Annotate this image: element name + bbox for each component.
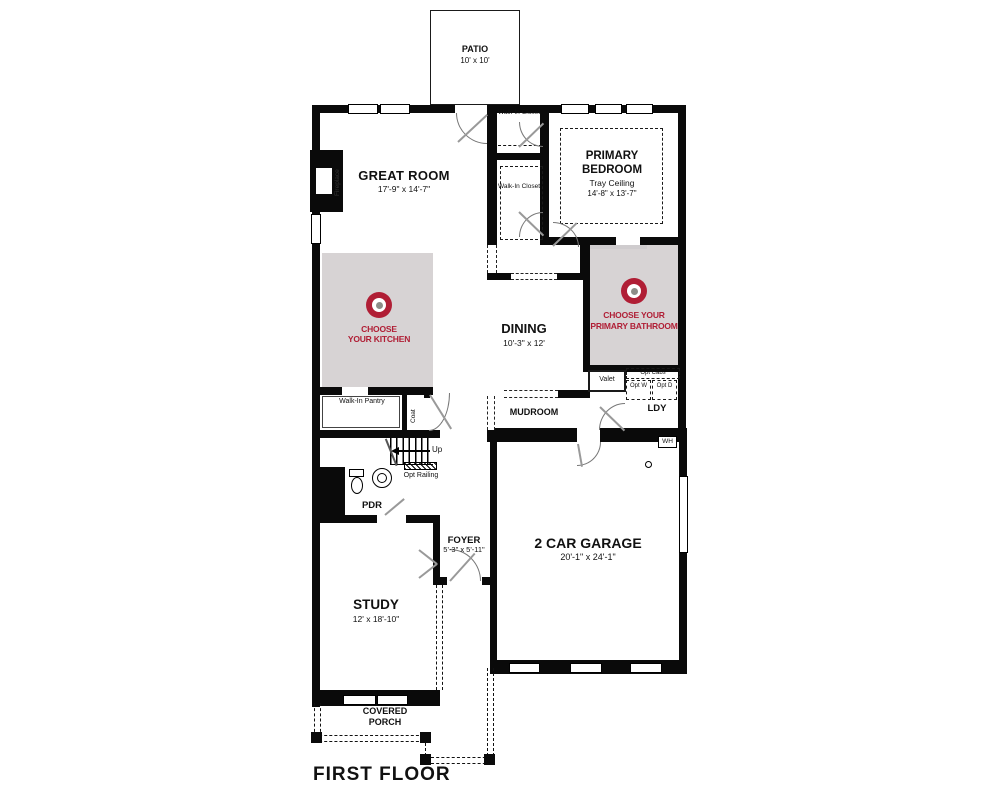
kitchen-callout-line1: CHOOSE: [330, 324, 428, 334]
wall-left-study: [312, 515, 320, 707]
great-room-name: GREAT ROOM: [344, 168, 464, 183]
stairs-up-label: Up: [432, 445, 452, 454]
wall-study-bottom: [312, 690, 440, 706]
study-name: STUDY: [330, 597, 422, 613]
window-greatroom-left: [311, 214, 321, 244]
cased-opening-mudroom-left: [487, 396, 495, 430]
porch-foyer-edge-2: [442, 585, 443, 690]
cased-opening-greatroom-hall: [487, 245, 497, 273]
primary-bedroom-dims: 14'-8" x 13'-7": [566, 189, 658, 198]
porch-edge-bottom-1b: [314, 741, 424, 742]
stair-up-arrow-line: [398, 450, 430, 452]
window-bedroom-3: [626, 104, 653, 114]
garage-door-2: [570, 663, 602, 673]
dining-name: DINING: [484, 321, 564, 336]
toilet-bowl-icon: [351, 477, 363, 494]
primary-bedroom-name: PRIMARY BEDROOM: [566, 150, 658, 177]
porch-edge-bottom-1a: [314, 735, 424, 736]
porch-edge-bottom-2a: [431, 757, 491, 758]
opt-washer-label: Opt W: [630, 383, 647, 390]
water-heater-label: WH: [658, 438, 677, 446]
window-study-2: [377, 695, 408, 705]
wall-study-top: [312, 515, 440, 523]
garage-name: 2 CAR GARAGE: [518, 535, 658, 552]
toilet-tank-icon: [349, 469, 364, 477]
wall-greatroom-closet: [487, 105, 497, 245]
kitchen-callout[interactable]: CHOOSE YOUR KITCHEN: [330, 290, 428, 345]
kitchen-callout-logo-icon: [366, 292, 392, 318]
valet-label: Valet: [588, 376, 626, 384]
opening-patio-door: [455, 105, 487, 113]
primary-bath-callout-logo-icon: [621, 278, 647, 304]
garage-door-1: [509, 663, 540, 673]
opt-railing-symbol: [404, 462, 437, 470]
opening-garage-entry: [577, 428, 600, 442]
opening-pdr-door: [377, 515, 406, 523]
laundry-name: LDY: [640, 403, 674, 414]
walk-in-closet-main-label: Walk-In Closet: [497, 183, 541, 191]
opening-pantry: [342, 387, 368, 395]
patio-dims: 10' x 10': [430, 56, 520, 65]
primary-bath-callout-line2: PRIMARY BATHROOM: [588, 321, 680, 331]
primary-bedroom-note: Tray Ceiling: [566, 178, 658, 188]
foyer-dims: 5'-3" x 5'-11": [432, 546, 496, 555]
window-bedroom-1: [561, 104, 589, 114]
porch-post-1: [311, 732, 322, 743]
first-floor-plan: PATIO 10' x 10' Fireplace: [0, 0, 1000, 800]
stair-up-arrow-head: [391, 447, 399, 455]
garage-door-3: [630, 663, 662, 673]
powder-room-name: PDR: [352, 500, 392, 511]
study-dims: 12' x 18'-10": [330, 614, 422, 624]
sink-drain-icon: [377, 473, 387, 483]
mudroom-name: MUDROOM: [498, 407, 570, 418]
page-title: FIRST FLOOR: [313, 764, 533, 786]
window-greatroom-1: [348, 104, 378, 114]
porch-edge-right-2: [493, 668, 494, 756]
garage-drain-icon: [645, 461, 652, 468]
wall-dining-mud: [558, 390, 590, 398]
wall-stair-top: [312, 430, 440, 438]
window-greatroom-2: [380, 104, 410, 114]
wall-right-laundry: [678, 372, 686, 433]
kitchen-callout-line2: YOUR KITCHEN: [330, 334, 428, 344]
dining-dims: 10'-3" x 12': [484, 338, 564, 348]
patio-name: PATIO: [430, 44, 520, 55]
great-room-dims: 17'-9" x 14'-7": [344, 184, 464, 194]
porch-post-2: [420, 732, 431, 743]
fireplace-label: Fireplace: [334, 158, 342, 208]
wall-closet-divider: [489, 153, 549, 160]
porch-edge-right-1: [487, 668, 488, 756]
garage-dims: 20'-1" x 24'-1": [518, 552, 658, 563]
garage-side-panel: [679, 476, 688, 553]
wall-kitchen-bottom: [312, 387, 433, 395]
porch-foyer-edge-1: [436, 585, 437, 690]
coat-name: Coat: [410, 399, 418, 433]
opt-cabs-label: Opt Cabs: [626, 370, 680, 377]
fireplace-firebox: [316, 168, 332, 194]
pantry-name: Walk-In Pantry: [330, 398, 394, 406]
window-study-1: [343, 695, 376, 705]
wall-garage-left: [490, 442, 497, 668]
opt-dryer-label: Opt D: [656, 383, 673, 390]
opt-railing-label: Opt Railing: [402, 472, 440, 480]
primary-bath-callout-line1: CHOOSE YOUR: [588, 310, 680, 320]
covered-porch-name: COVERED PORCH: [352, 706, 418, 727]
walk-in-closet-top-label: Walk-In Closet: [495, 109, 543, 117]
window-bedroom-2: [595, 104, 622, 114]
wall-pdr-block: [312, 467, 345, 515]
opening-bedroom-bath: [616, 237, 640, 245]
primary-bath-callout[interactable]: CHOOSE YOUR PRIMARY BATHROOM: [588, 276, 680, 332]
cased-opening-dining-mudroom: [504, 390, 558, 398]
cased-opening-hall-dining: [511, 273, 557, 280]
